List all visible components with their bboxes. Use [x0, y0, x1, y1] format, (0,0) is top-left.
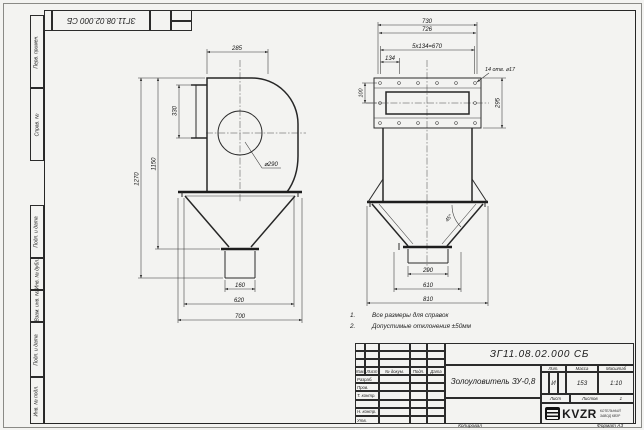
bolt-hole — [398, 122, 401, 125]
dim-1270: 1270 — [135, 172, 141, 186]
hopper-cone-walls — [372, 204, 483, 246]
bolt-hole — [436, 122, 439, 125]
rev-cell — [365, 343, 379, 351]
col-header-doc: № докум. — [379, 367, 410, 375]
title-doc-number: ЗГ11.08.02.000 СБ — [445, 343, 634, 365]
note-text: Допустимые отклонения ±50мм — [372, 323, 532, 330]
rev-cell — [355, 359, 365, 367]
sig-cell — [379, 391, 410, 399]
sheets-label: Листов — [582, 396, 598, 401]
dim-160: 160 — [235, 283, 246, 289]
dim-810: 810 — [423, 297, 434, 303]
dim-134: 134 — [385, 56, 396, 62]
angle-arc — [452, 205, 461, 227]
rev-cell — [355, 343, 365, 351]
drawing-notes: 1. Все размеры для справок 2. Допустимые… — [350, 312, 532, 334]
col-header-izm: Изм. — [355, 367, 365, 375]
empty-name-cell — [445, 398, 541, 424]
sig-cell — [379, 408, 410, 416]
sheets-cell: Листов 1 — [570, 394, 634, 403]
sig-cell — [379, 375, 410, 383]
kvzr-logo-icon — [545, 407, 560, 420]
scale-value: 1:10 — [598, 372, 634, 394]
bolt-hole — [417, 82, 420, 85]
sig-cell — [410, 408, 427, 416]
dim-circle-dia: ⌀290 — [264, 162, 278, 168]
rev-cell — [427, 359, 445, 367]
rev-cell — [427, 351, 445, 359]
dim-670: 5x134=670 — [412, 44, 443, 50]
sig-cell — [410, 400, 427, 408]
sig-cell — [427, 416, 445, 424]
dim-730: 730 — [422, 19, 433, 25]
outlet-pipe — [408, 249, 448, 263]
dim-330: 330 — [173, 105, 179, 116]
sig-cell — [379, 400, 410, 408]
bolt-hole — [417, 122, 420, 125]
row-checked: Пров. — [355, 383, 379, 391]
dim-285: 285 — [231, 46, 243, 52]
ext-lines-1150 — [155, 78, 220, 249]
product-name: Золоуловитель ЗУ-0,8 — [445, 365, 541, 398]
format-label: Формат А3 — [575, 424, 644, 430]
dim-1150: 1150 — [152, 157, 158, 171]
ext-lines-1270 — [138, 78, 223, 278]
company-logo-text: KVZR — [562, 407, 597, 421]
hopper-cone-walls — [185, 196, 295, 247]
sig-cell — [427, 400, 445, 408]
ext-lines-285 — [207, 49, 268, 74]
sig-cell — [379, 383, 410, 391]
sig-cell — [427, 391, 445, 399]
sig-cell — [427, 408, 445, 416]
lit-subcell — [541, 372, 549, 394]
rev-cell — [355, 351, 365, 359]
gussets — [368, 179, 487, 202]
sheet-label: Лист — [541, 394, 570, 403]
copied-label: Копировал — [420, 424, 520, 430]
dim-100: 100 — [359, 89, 365, 98]
mass-value: 153 — [566, 372, 598, 394]
dim-610: 610 — [423, 283, 434, 289]
ext-lines-330 — [176, 85, 194, 138]
bolt-hole — [398, 82, 401, 85]
col-header-list: Лист — [365, 367, 379, 375]
right-view-cyclone-front: 730 726 5x134=670 134 14 отв. ⌀17 100 29… — [359, 19, 517, 306]
note-number: 1. — [350, 312, 372, 319]
sig-cell — [427, 375, 445, 383]
ext-lines-295 — [483, 78, 506, 128]
ext-lines-810 — [367, 206, 488, 306]
rev-cell — [427, 343, 445, 351]
row-ncontrol: Н. контр. — [355, 408, 379, 416]
rev-cell — [379, 351, 410, 359]
note-1: 1. Все размеры для справок — [350, 312, 532, 319]
row-tcontrol: Т. контр. — [355, 391, 379, 399]
bolt-hole — [436, 82, 439, 85]
sig-cell — [410, 383, 427, 391]
drawing-sheet: Перв. примен. Справ. № Подп. и дата Инв.… — [0, 0, 644, 430]
rev-cell — [379, 343, 410, 351]
dim-620: 620 — [234, 298, 245, 304]
row-approved: Утв. — [355, 416, 379, 424]
mass-header: Масса — [566, 365, 598, 372]
volute-body-outline — [207, 78, 298, 192]
body-walls — [383, 128, 472, 202]
sig-cell — [427, 383, 445, 391]
company-name: КОТЕЛЬНЫЙ ЗАВОД КВЗР — [600, 409, 630, 417]
scale-header: Масштаб — [598, 365, 634, 372]
rev-cell — [410, 351, 427, 359]
bolt-hole — [455, 82, 458, 85]
dim-700: 700 — [235, 314, 246, 320]
bolt-hole — [379, 122, 382, 125]
rev-cell — [410, 359, 427, 367]
note-number: 2. — [350, 323, 372, 330]
col-header-date: Дата — [427, 367, 445, 375]
left-view-cyclone-side: 285 330 1150 1270 ⌀290 160 620 — [135, 46, 307, 323]
holes-note: 14 отв. ⌀17 — [485, 67, 516, 73]
sig-cell — [410, 391, 427, 399]
bolt-hole — [474, 82, 477, 85]
lit-header: Лит. — [541, 365, 566, 372]
sig-cell — [410, 416, 427, 424]
rev-cell — [365, 351, 379, 359]
note-text: Все размеры для справок — [372, 312, 532, 319]
rev-cell — [365, 359, 379, 367]
dim-45deg: 45° — [444, 213, 454, 223]
outlet-pipe — [225, 251, 255, 278]
rev-cell — [410, 343, 427, 351]
sig-cell — [410, 375, 427, 383]
lit-subcell — [558, 372, 566, 394]
inlet-flange-plates — [191, 85, 207, 138]
sig-cell — [355, 400, 379, 408]
col-header-sign: Подп. — [410, 367, 427, 375]
hopper-cone-inner — [379, 204, 476, 244]
dim-726: 726 — [422, 27, 433, 33]
company-cell: KVZR КОТЕЛЬНЫЙ ЗАВОД КВЗР — [541, 403, 634, 424]
sig-cell — [379, 416, 410, 424]
bolt-hole — [455, 122, 458, 125]
dim-295: 295 — [496, 97, 502, 109]
sheets-value: 1 — [620, 396, 622, 401]
note-2: 2. Допустимые отклонения ±50мм — [350, 323, 532, 330]
lit-value: И — [549, 372, 557, 394]
bolt-hole — [379, 82, 382, 85]
dim-290: 290 — [422, 268, 434, 274]
rev-cell — [379, 359, 410, 367]
bolt-hole — [474, 122, 477, 125]
row-developed: Разраб. — [355, 375, 379, 383]
